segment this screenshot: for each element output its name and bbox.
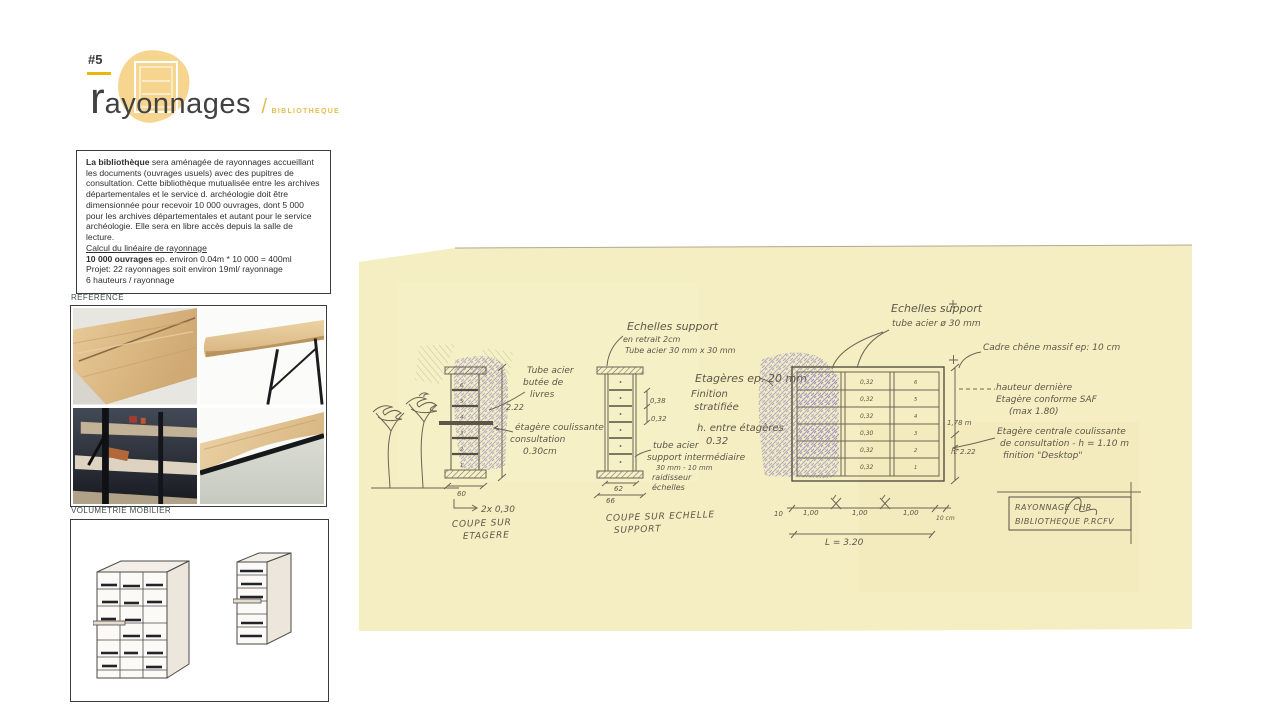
- reference-photo-grid: [70, 305, 327, 507]
- pullout-shelf: [93, 621, 125, 625]
- row-dim: 0,32: [860, 413, 874, 420]
- row-dim: 0,32: [860, 379, 874, 386]
- annotation: (max 1.80): [1009, 407, 1059, 417]
- title-initial: r: [90, 74, 105, 123]
- bottom-dim: 10 cm: [936, 515, 955, 522]
- bottom-dim: 10: [774, 510, 783, 518]
- title-separator: /: [262, 96, 268, 118]
- calc-line-3: 6 hauteurs / rayonnage: [86, 275, 322, 286]
- shelf-num: 3: [460, 431, 463, 437]
- dim-width: 60: [457, 490, 466, 498]
- page-number: #5: [88, 52, 102, 67]
- sliding-shelf: [439, 421, 493, 425]
- caption-line: ETAGERE: [463, 530, 510, 542]
- annotation: Finition: [691, 389, 728, 400]
- title-subtitle: BIBLIOTHEQUE: [272, 108, 341, 115]
- row-dim: 0,32: [860, 464, 874, 471]
- bottom-dim: 1,00: [903, 509, 919, 517]
- dim: 0,38: [650, 397, 666, 405]
- annotation: Etagère centrale coulissante: [997, 426, 1126, 437]
- intro-text-box: La bibliothèque sera aménagée de rayonna…: [76, 150, 331, 294]
- shelf-unit-wide-render: [93, 552, 193, 684]
- annotation: 30 mm - 10 mm: [656, 464, 713, 472]
- annotation: stratifiée: [694, 401, 739, 413]
- reference-photo-oak-tabletop: [73, 308, 197, 405]
- page: { "colors":{"accent_blob":"#f6d58f","gol…: [0, 0, 1280, 720]
- section-label-volumetrie: VOLUMETRIE MOBILIER: [71, 506, 171, 515]
- reference-photo-table-metal-leg: [200, 308, 324, 405]
- calc-title: Calcul du linéaire de rayonnage: [86, 243, 322, 254]
- annotation: Echelles support: [891, 302, 983, 315]
- annotation: 0.32: [706, 436, 728, 447]
- annotation: livres: [530, 390, 555, 400]
- annotation: tube acier: [653, 441, 700, 451]
- intro-lead: La bibliothèque: [86, 157, 150, 167]
- bottom-dim: 1,00: [803, 509, 819, 517]
- dim-height: h: 2.22: [951, 448, 976, 456]
- pullout-shelf: [233, 599, 261, 603]
- intro-body: sera aménagée de rayonnages accueillant …: [86, 157, 320, 242]
- title-block-line: BIBLIOTHEQUE P.RCFV: [1015, 517, 1114, 526]
- calc-line-2: Projet: 22 rayonnages soit environ 19ml/…: [86, 264, 322, 275]
- annotation: Echelles support: [627, 320, 719, 333]
- row-num: 2: [914, 448, 917, 454]
- page-title: rayonnages / BIBLIOTHEQUE: [90, 74, 340, 124]
- volumetrie-box: [70, 519, 329, 702]
- shelf-num: 2: [460, 447, 463, 453]
- annotation: tube acier ø 30 mm: [892, 319, 981, 329]
- bottom-dim: 1,00: [852, 509, 868, 517]
- dim-height: 1,78 m: [947, 419, 972, 427]
- annotation: butée de: [523, 377, 564, 388]
- shelf-num: 1: [460, 463, 463, 469]
- calc-line-1-rest: ep. environ 0.04m * 10 000 = 400ml: [153, 254, 292, 264]
- reference-photo-tabletop-corner: [200, 408, 324, 505]
- row-num: 1: [914, 465, 917, 471]
- caption-line: COUPE SUR: [452, 518, 512, 530]
- row-dim: 0,30: [860, 430, 874, 437]
- section-label-reference: REFERENCE: [71, 293, 124, 302]
- annotation: Etagères ep. 20 mm: [695, 372, 807, 385]
- annotation: hauteur dernière: [996, 382, 1073, 393]
- reference-photo-shelving-dark: [73, 408, 197, 505]
- annotation: support intermédiaire: [647, 452, 746, 463]
- annotation: Tube acier: [527, 366, 575, 376]
- sketch-tracing-paper: 6 5 4 3 2 1 2.22 60 2x 0,30 COUPE SUR ET…: [359, 242, 1194, 634]
- annotation: de consultation - h = 1.10 m: [1000, 439, 1129, 449]
- annotation: Tube acier 30 mm x 30 mm: [625, 346, 736, 355]
- intro-paragraph: La bibliothèque sera aménagée de rayonna…: [86, 157, 322, 243]
- annotation: 0.30cm: [523, 447, 557, 457]
- row-dim: 0,32: [860, 447, 874, 454]
- annotation: consultation: [510, 435, 566, 445]
- dim: 0,32: [651, 415, 667, 423]
- caption-line: SUPPORT: [614, 524, 663, 536]
- dim-width: 62: [614, 485, 623, 493]
- dim-note: 2x 0,30: [481, 505, 515, 515]
- calc-line-1: 10 000 ouvrages ep. environ 0.04m * 10 0…: [86, 254, 322, 265]
- row-num: 3: [914, 431, 917, 437]
- annotation: en retrait 2cm: [623, 335, 680, 344]
- annotation: échelles: [652, 482, 685, 492]
- row-num: 4: [914, 414, 917, 420]
- annotation: h. entre étagères: [697, 422, 784, 434]
- annotation: étagère coulissante: [515, 422, 604, 433]
- dim-width: 66: [606, 497, 615, 505]
- total-dim: L = 3.20: [825, 538, 864, 548]
- annotation: finition "Desktop": [1003, 451, 1083, 461]
- dim-height: 2.22: [506, 403, 524, 412]
- calc-line-1-bold: 10 000 ouvrages: [86, 254, 153, 264]
- row-dim: 0,32: [860, 396, 874, 403]
- annotation: raidisseur: [652, 473, 692, 482]
- shelf-unit-narrow-render: [233, 548, 295, 652]
- annotation: Etagère conforme SAF: [996, 394, 1098, 405]
- shelf-num: 4: [460, 415, 463, 421]
- annotation: Cadre chêne massif ep: 10 cm: [983, 342, 1120, 353]
- title-rest: ayonnages: [105, 88, 251, 120]
